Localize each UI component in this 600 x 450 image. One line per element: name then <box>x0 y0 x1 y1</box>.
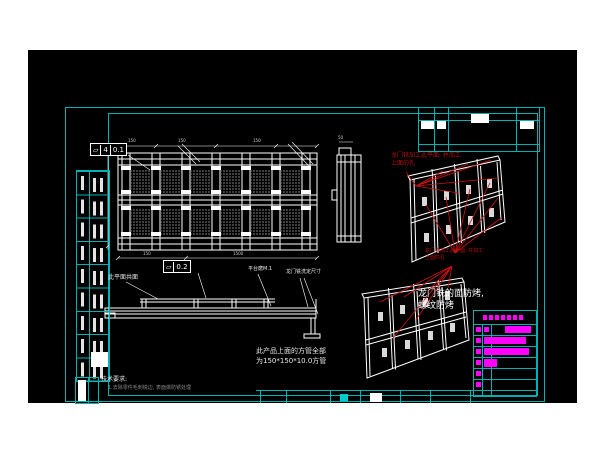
strip-divider <box>89 171 90 381</box>
title-field <box>476 349 481 354</box>
coplanar-label: 此平面共面 <box>108 272 138 281</box>
corner-cells <box>75 377 99 404</box>
tech-req-title: 技术要求: <box>101 374 127 383</box>
parts-list-strip <box>76 170 110 382</box>
dim-label: 150 <box>143 252 151 256</box>
platform-label: 平台磨M.1 <box>248 265 272 272</box>
title-field <box>476 371 481 376</box>
gdt-symbol: ▱ <box>164 262 173 272</box>
revision-entry <box>421 121 434 129</box>
revision-table <box>418 107 540 152</box>
bottom-strip-mark <box>370 393 382 402</box>
gantry-finish-label: 龙门铣洗定尺寸 <box>286 268 321 275</box>
side-elevation <box>105 299 320 338</box>
red-note-bottom: 龙门铣加工此平面, 并加工 上面的孔 <box>425 248 483 261</box>
title-field <box>484 348 529 355</box>
strip-text-column <box>100 173 103 381</box>
revision-entry <box>437 121 446 129</box>
strip-filled-cell <box>91 352 108 367</box>
title-block <box>473 310 537 397</box>
screenshot-page: ▱40.1 ▱0.2 此平面共面 平台磨M.1 龙门铣洗定尺寸 龙门铣加工此平面… <box>0 0 600 450</box>
corner-filled-cell <box>78 380 86 401</box>
revision-entry <box>520 121 534 129</box>
strip-text-column <box>81 171 84 381</box>
square-tube-note: 此产品上面的方管全部 为150*150*10.0方管 <box>256 346 326 366</box>
bake-protection-note: 龙门铣的面防烤, 螺纹防烤 <box>418 288 484 312</box>
title-field <box>476 360 481 365</box>
revision-entry <box>471 114 489 123</box>
gdt-flatness-callout-top: ▱40.1 <box>90 143 127 156</box>
title-field <box>476 382 481 387</box>
dim-label: 150 <box>253 139 261 143</box>
red-note-top: 龙门铣加工此平面, 并加工 上面的孔 <box>391 152 461 167</box>
title-field <box>484 359 497 367</box>
cad-canvas: ▱40.1 ▱0.2 此平面共面 平台磨M.1 龙门铣洗定尺寸 龙门铣加工此平面… <box>28 50 577 403</box>
title-field <box>484 337 526 344</box>
dim-label: 150 <box>178 139 186 143</box>
title-field <box>505 326 531 333</box>
dim-label: 150 <box>128 139 136 143</box>
corner-divider <box>88 378 89 403</box>
hatch-panels <box>131 169 301 236</box>
plan-view <box>118 153 317 250</box>
dim-label: 50 <box>338 136 343 140</box>
title-field <box>476 327 481 332</box>
bottom-strip <box>256 390 473 403</box>
gdt-symbol: ▱ <box>91 145 100 155</box>
dim-label: 1500 <box>233 252 243 256</box>
gdt-flatness-callout-mid: ▱0.2 <box>163 260 191 273</box>
strip-text-column <box>93 173 96 381</box>
bottom-strip-mark <box>340 394 348 401</box>
tech-req-item: 1.去除零件毛刺锐边, 表面做防锈处理 <box>108 384 191 391</box>
title-field <box>484 327 489 332</box>
title-block-header-text <box>483 315 523 320</box>
section-view <box>332 148 361 242</box>
title-field <box>476 338 481 343</box>
